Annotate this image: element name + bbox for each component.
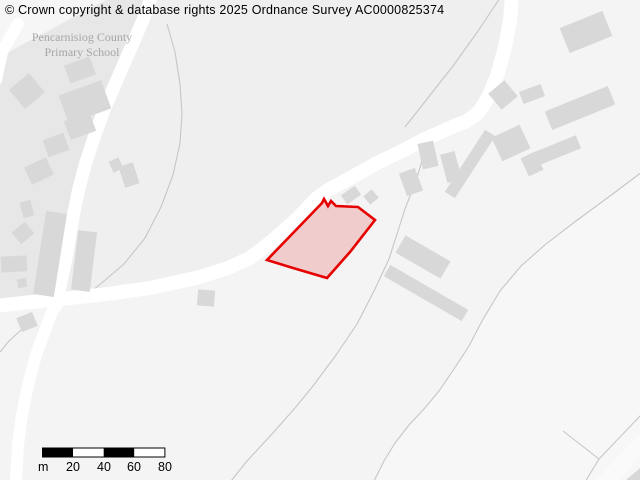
scalebar-layer bbox=[43, 448, 165, 457]
scale-tick-label: 80 bbox=[155, 460, 175, 474]
school-label: Pencarnisiog County Primary School bbox=[18, 30, 146, 60]
scale-tick-label: 60 bbox=[124, 460, 144, 474]
school-label-line2: Primary School bbox=[18, 45, 146, 60]
attribution-text: © Crown copyright & database rights 2025… bbox=[5, 3, 444, 17]
school-label-line1: Pencarnisiog County bbox=[18, 30, 146, 45]
scale-bar-segment bbox=[134, 448, 165, 457]
building bbox=[1, 255, 28, 272]
building bbox=[197, 289, 215, 306]
scale-tick-label: 20 bbox=[63, 460, 83, 474]
building bbox=[118, 162, 139, 188]
scale-bar-segment bbox=[43, 448, 74, 457]
scale-bar-segment bbox=[104, 448, 135, 457]
scale-tick-label: 40 bbox=[94, 460, 114, 474]
map-svg bbox=[0, 0, 640, 480]
scale-bar-segment bbox=[73, 448, 104, 457]
building bbox=[17, 278, 27, 288]
scale-unit-label: m bbox=[38, 460, 50, 474]
map-canvas: © Crown copyright & database rights 2025… bbox=[0, 0, 640, 480]
